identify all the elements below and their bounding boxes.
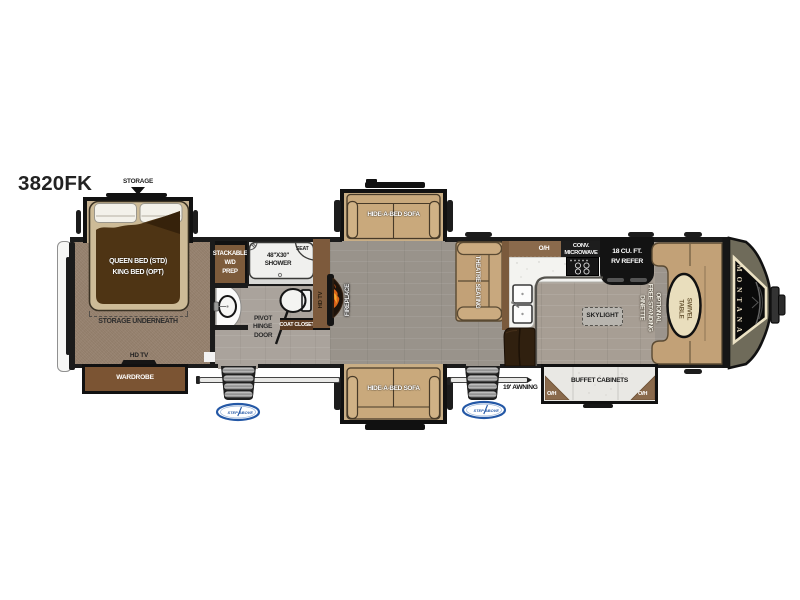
svg-text:MONTANA: MONTANA xyxy=(735,265,743,337)
svg-text:STEP: STEP xyxy=(474,408,485,413)
svg-text:STEP: STEP xyxy=(228,410,239,415)
